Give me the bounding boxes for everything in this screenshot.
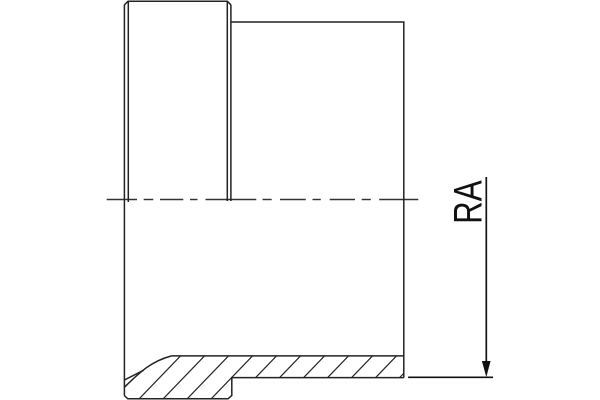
svg-text:RA: RA [447,180,491,224]
